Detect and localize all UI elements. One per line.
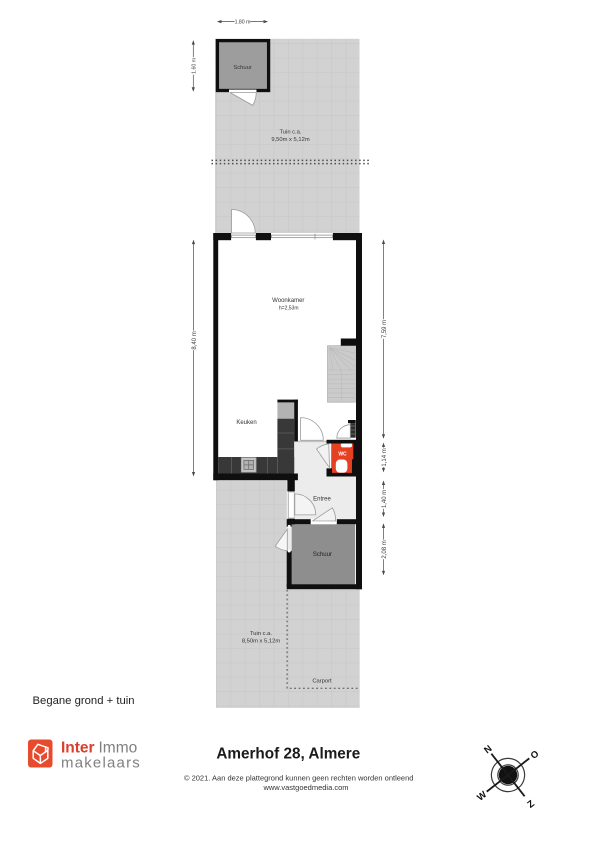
svg-text:Tuin c.a.: Tuin c.a. <box>250 631 272 637</box>
svg-text:Schuur: Schuur <box>313 552 332 558</box>
svg-text:8,40 m: 8,40 m <box>192 331 198 349</box>
svg-text:1.60 m: 1.60 m <box>191 58 197 74</box>
svg-text:h=2,53m: h=2,53m <box>279 305 299 311</box>
svg-text:Begane grond + tuin: Begane grond + tuin <box>33 695 135 707</box>
svg-text:Keuken: Keuken <box>236 420 256 426</box>
svg-text:2,08 m: 2,08 m <box>382 540 388 558</box>
svg-text:1,14 m: 1,14 m <box>382 448 388 466</box>
svg-text:Carport: Carport <box>312 679 332 685</box>
svg-text:© 2021. Aan deze plattegrond k: © 2021. Aan deze plattegrond kunnen geen… <box>184 773 413 782</box>
svg-text:makelaars: makelaars <box>61 755 141 772</box>
svg-text:8,50m x 5,12m: 8,50m x 5,12m <box>242 639 281 645</box>
svg-text:1,40 m: 1,40 m <box>382 490 388 508</box>
svg-text:Tuin c.a.: Tuin c.a. <box>279 130 301 136</box>
svg-text:www.vastgoedmedia.com: www.vastgoedmedia.com <box>262 783 348 792</box>
svg-text:Amerhof 28, Almere: Amerhof 28, Almere <box>216 746 360 763</box>
svg-text:9,50m x 5,12m: 9,50m x 5,12m <box>271 137 310 143</box>
svg-text:7,59 m: 7,59 m <box>382 320 388 338</box>
svg-text:1.80 m: 1.80 m <box>235 20 251 26</box>
svg-text:Schuur: Schuur <box>233 65 251 71</box>
svg-text:WC: WC <box>338 452 347 458</box>
svg-text:Woonkamer: Woonkamer <box>272 298 304 304</box>
svg-text:Entree: Entree <box>313 497 331 503</box>
